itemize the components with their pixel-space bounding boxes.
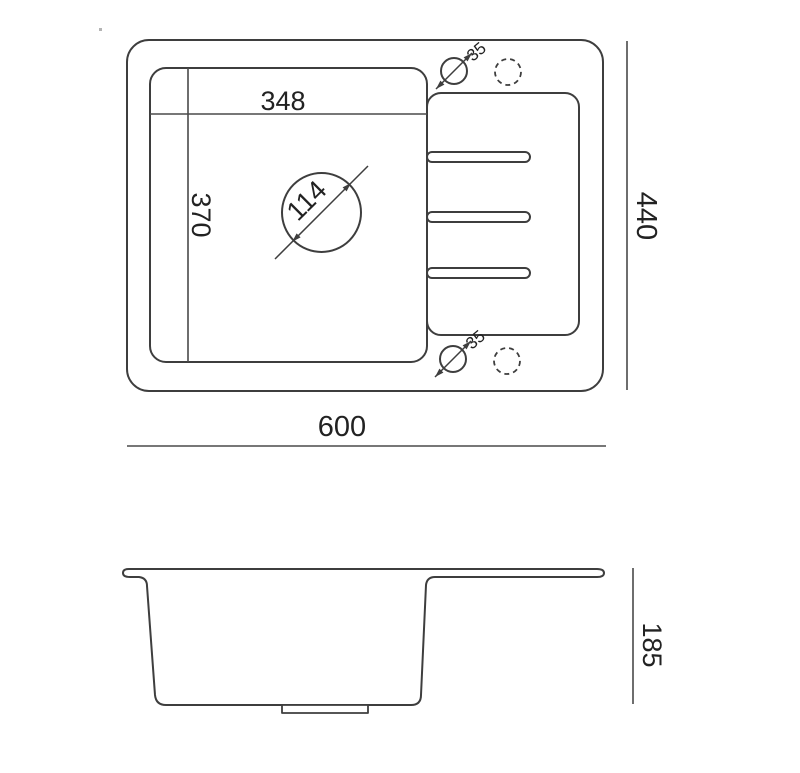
drainboard-ridge <box>427 152 530 162</box>
sink-technical-drawing: 348 370 114 35 35 <box>0 0 800 773</box>
top-view: 348 370 114 35 35 <box>127 38 662 446</box>
drain-fitting-outline <box>282 705 368 713</box>
side-view: 185 <box>123 568 667 713</box>
bowl-depth-label: 370 <box>186 192 216 237</box>
drainboard-ridge <box>427 268 530 278</box>
overall-height-label: 185 <box>637 622 667 667</box>
overall-depth-label: 440 <box>630 192 662 240</box>
scan-artifact-dot <box>99 28 102 31</box>
side-profile-outline <box>123 569 604 705</box>
drawing-canvas: 348 370 114 35 35 <box>0 0 800 773</box>
overall-width-label: 600 <box>318 411 366 443</box>
bowl-width-label: 348 <box>260 86 305 116</box>
drainboard-ridge <box>427 212 530 222</box>
